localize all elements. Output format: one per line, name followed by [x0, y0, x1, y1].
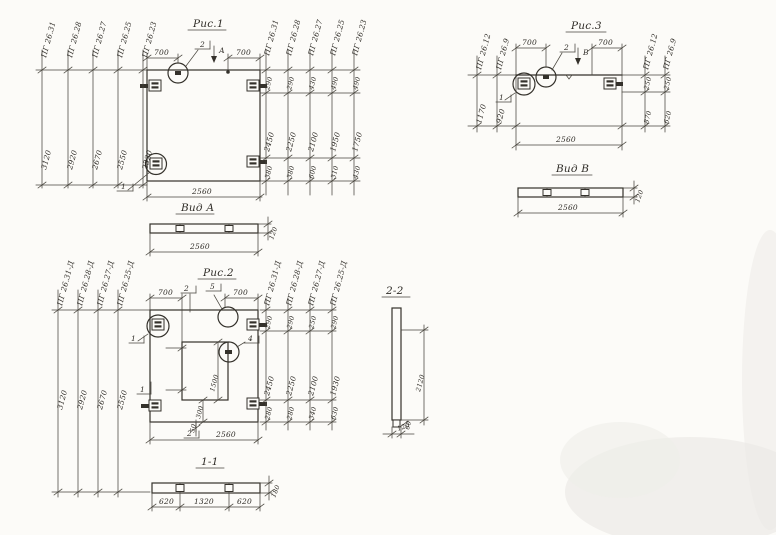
dim-label: 280	[263, 406, 274, 422]
view-b-bar	[518, 188, 623, 197]
dim-label: 2920	[65, 149, 79, 172]
anchor-tab	[141, 404, 149, 408]
fig1-plate-outline	[147, 70, 260, 181]
product-label: ПГ 26.28	[65, 20, 84, 59]
dim-label: 3120	[55, 389, 69, 411]
fig3-left-labels: ПГ 26.12 ПГ 26.9 1170 920	[474, 32, 511, 124]
section-1-1-bar-details	[176, 483, 233, 493]
embed-anchor-icon	[604, 78, 616, 89]
dim-label: 870	[642, 110, 653, 125]
embed-anchor-icon	[247, 319, 259, 330]
fig1-item-marker: 1	[121, 182, 126, 191]
dim-label: 490	[351, 76, 362, 92]
view-a-bar	[150, 224, 258, 233]
dim-label: 1950	[328, 131, 342, 153]
dim-label: 2550	[115, 389, 129, 412]
dim-label: 250	[307, 315, 318, 331]
product-label: ПГ 26.31	[39, 20, 58, 59]
product-label: ПГ 26.28-Д	[75, 259, 96, 307]
product-label: ПГ 26.25-Д	[115, 259, 136, 307]
fig1-title: Рис.1	[192, 18, 224, 30]
dim-label: 2100	[306, 375, 320, 398]
section-1-1-title: 1-1	[201, 456, 219, 468]
dim-label: 630	[329, 406, 340, 421]
dim-label: 490	[329, 76, 340, 92]
dim-label: 2920	[75, 389, 89, 412]
fig1-detail-2-leader	[186, 41, 210, 66]
dim-label: 2250	[284, 375, 298, 398]
view-a-title: Вид А	[180, 202, 214, 214]
dim-label: 2100	[306, 131, 320, 154]
dim-label: 620	[662, 110, 673, 125]
fig1-embed-anchors	[140, 80, 267, 175]
dim-label: 1500	[208, 374, 220, 393]
dim-label: 2560	[555, 135, 576, 144]
fig2-left-labels: ПГ 26.31-Д ПГ 26.28-Д ПГ 26.27-Д ПГ 26.2…	[55, 259, 136, 411]
dim-label: 700	[154, 48, 169, 57]
product-label: ПГ 26.28-Д	[284, 259, 305, 307]
dim-label: 120	[267, 226, 279, 241]
product-label: ПГ 26.9	[494, 37, 511, 71]
dim-label: 380	[263, 165, 274, 180]
fig1-view-arrow	[211, 46, 217, 63]
fig1-detail-marker: 2	[199, 40, 205, 49]
product-label: ПГ 26.31	[262, 18, 281, 57]
dim-label: 2450	[262, 375, 276, 398]
dim-label: 600	[307, 165, 318, 180]
product-label: ПГ 26.23	[350, 18, 369, 57]
product-label: ПГ 26.27-Д	[306, 259, 327, 307]
fig3-item-marker: 1	[499, 93, 504, 102]
dim-label: 3120	[39, 149, 53, 171]
fig1-right-labels: ПГ 26.31 ПГ 26.28 ПГ 26.27 ПГ 26.25 ПГ 2…	[262, 18, 369, 180]
figure-3: Рис.3 1 2 В	[468, 20, 678, 150]
dim-label: 250	[662, 76, 673, 92]
dim-label: 700	[233, 288, 248, 297]
embed-anchor-icon	[152, 319, 164, 330]
fig3-title: Рис.3	[570, 20, 602, 32]
section-2-2-title: 2-2	[385, 285, 404, 297]
dim-label: 2450	[262, 131, 276, 154]
dim-label: 290	[263, 76, 274, 92]
fig2-section-marker-top: 2	[183, 284, 189, 293]
embed-anchor-icon	[247, 398, 259, 409]
dim-label: 1750	[350, 131, 364, 153]
view-b: Вид В 2560 120	[514, 163, 645, 217]
fig3-view-arrowhead	[575, 58, 581, 65]
dim-label: 1930	[328, 375, 342, 397]
dim-label: 2120	[414, 374, 426, 394]
fig2-right-labels: ПГ 26.31-Д ПГ 26.28-Д ПГ 26.27-Д ПГ 26.2…	[262, 259, 349, 421]
dim-label: 2670	[90, 149, 104, 172]
dim-label: 310	[329, 165, 340, 180]
anchor-tab	[140, 84, 148, 88]
product-label: ПГ 26.31-Д	[55, 259, 76, 307]
anchor-tab	[616, 82, 623, 86]
anchor-dot	[543, 75, 549, 79]
dim-label: 2560	[557, 203, 578, 212]
embed-anchor-icon	[247, 80, 259, 91]
fig1-left-labels: ПГ 26.31 ПГ 26.28 ПГ 26.27 ПГ 26.25 ПГ 2…	[39, 20, 159, 171]
fig3-top-dims-linework	[512, 44, 626, 75]
dim-label: 700	[158, 288, 173, 297]
fig3-right-labels: ПГ 26.12 ПГ 26.9 250 250 870 620	[641, 32, 678, 124]
fig3-embed-anchors	[513, 67, 623, 95]
scan-stain	[560, 230, 776, 535]
embed-anchor-icon	[518, 78, 530, 89]
dim-label: 120	[633, 189, 645, 204]
dim-label: 430	[351, 165, 362, 181]
product-label: ПГ 26.12	[474, 32, 493, 71]
fig2-top-dims-linework	[146, 294, 262, 342]
product-label: ПГ 26.27	[306, 18, 325, 57]
dim-label: 620	[159, 497, 174, 506]
embed-anchor-icon	[149, 400, 161, 411]
view-a-bar-details	[176, 224, 233, 233]
product-label: ПГ 26.25	[328, 18, 347, 57]
product-label: ПГ 26.9	[661, 37, 678, 71]
dim-label: 700	[598, 38, 613, 47]
view-b-title: Вид В	[555, 163, 589, 175]
dim-label: 290	[263, 315, 274, 331]
product-label: ПГ 26.27	[90, 20, 109, 59]
dim-label: 290	[285, 76, 296, 92]
dim-label: 300	[194, 405, 205, 420]
section-2-2-bar	[392, 308, 401, 420]
dim-label: 180	[269, 484, 281, 499]
anchor-dot	[225, 350, 232, 354]
dim-label: 2550	[115, 149, 129, 172]
product-label: ПГ 26.31-Д	[262, 259, 283, 307]
dim-label: 280	[285, 406, 296, 422]
dim-label: 920	[494, 108, 507, 125]
dim-label: 250	[642, 76, 653, 92]
fig2-section-marker-side: 1	[140, 385, 145, 394]
fig2-embed-anchors	[141, 307, 267, 411]
dim-label: 700	[522, 38, 537, 47]
view-a: Вид А 2560 120	[146, 202, 279, 256]
dim-label: 380	[285, 165, 296, 180]
figure-1: Рис.1 1 2 А	[36, 18, 369, 201]
product-label: ПГ 26.25	[115, 20, 134, 59]
product-label: ПГ 26.27-Д	[95, 259, 116, 307]
dim-label: 290	[329, 315, 340, 331]
dim-label: 2560	[191, 187, 212, 196]
embed-anchor-icon	[149, 80, 161, 91]
section-1-1: 1-1 620 1320 620 180	[148, 456, 282, 511]
fig2-plate-outline	[150, 310, 258, 422]
dim-label: 2560	[189, 242, 210, 251]
view-b-bar-details	[543, 188, 589, 197]
product-label: ПГ 26.12	[641, 32, 660, 71]
fig2-item-marker: 1	[131, 334, 136, 343]
dim-label: 430	[307, 76, 318, 92]
embed-anchor-icon	[247, 156, 259, 167]
section-1-1-bar	[152, 483, 260, 493]
fig2-opening-outline	[182, 342, 228, 400]
product-label: ПГ 26.25-Д	[328, 259, 349, 307]
fig2-title: Рис.2	[202, 267, 234, 279]
fig3-view-marker: В	[582, 48, 589, 57]
dim-label: 50	[188, 423, 198, 433]
dim-label: 620	[237, 497, 252, 506]
fig2-detail-marker-side: 4	[247, 334, 253, 343]
dim-label: 290	[285, 315, 296, 331]
drawing-canvas: Рис.1 1 2 А	[0, 0, 776, 535]
fig2-bottom-dim-linework	[146, 422, 262, 444]
dim-label: 1320	[194, 497, 214, 506]
fig2-detail-marker-top: 5	[210, 282, 215, 291]
product-label: ПГ 26.28	[284, 18, 303, 57]
drawing-sheet: Рис.1 1 2 А	[0, 0, 776, 535]
dim-label: 340	[307, 406, 318, 421]
dim-label: 2250	[284, 131, 298, 154]
dim-label: 700	[236, 48, 251, 57]
anchor-dot	[175, 71, 181, 75]
section-2-2: 2-2 2120 60 120	[382, 285, 428, 438]
fig1-view-marker: А	[218, 46, 225, 55]
dim-label: 2560	[215, 430, 236, 439]
dim-label: 2670	[95, 389, 109, 412]
fig3-detail-marker: 2	[563, 43, 569, 52]
dim-label: 1170	[474, 103, 488, 125]
